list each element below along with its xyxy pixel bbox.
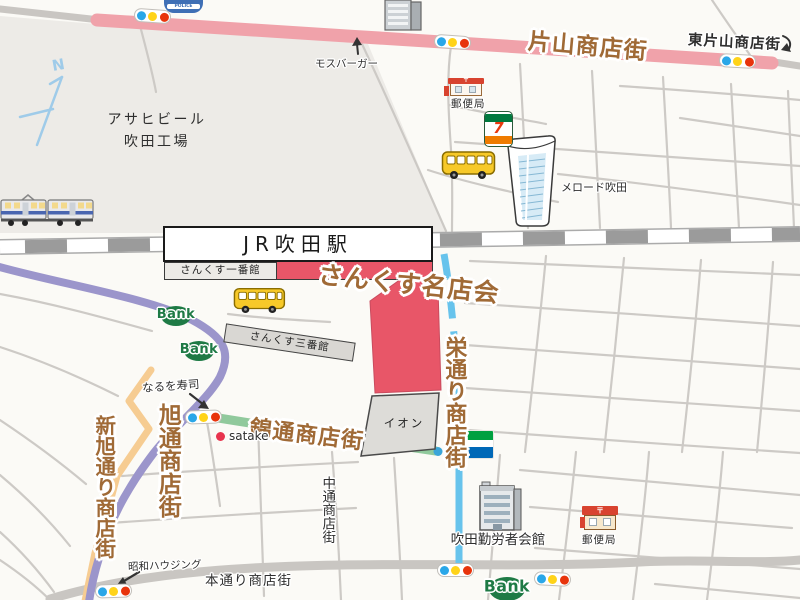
signal-red: [120, 586, 129, 595]
traffic-light-icon: [719, 53, 757, 69]
signal-yellow: [548, 574, 557, 583]
bank-icon: Bank: [476, 569, 538, 600]
traffic-light-icon: [95, 583, 132, 598]
postal-mark: 〒: [448, 78, 484, 84]
street-label-shin-asahi-dori: 新旭通り商店街: [92, 415, 114, 559]
place-label-post-office-bottom: 郵便局: [582, 532, 617, 547]
place-label-asahi-beer-1: アサヒビール: [104, 109, 210, 129]
signal-red: [744, 57, 753, 66]
signal-blue: [97, 587, 106, 596]
seven-numeral: 7: [485, 119, 512, 137]
familymart-icon: FamilyMart: [465, 430, 494, 459]
signal-blue: [436, 36, 446, 46]
place-label-asahi-beer-2: 吹田工場: [121, 131, 193, 151]
traffic-light-icon: [437, 563, 474, 577]
map-canvas: JR吹田駅 さんくす一番館 さんくす三番館 POLICE 〒 7 FamilyM…: [0, 0, 800, 600]
signal-red: [559, 575, 568, 584]
police-band: POLICE: [167, 4, 200, 9]
signal-blue: [136, 10, 146, 20]
traffic-light-icon: [434, 34, 472, 51]
sanks-no1-box: さんくす一番館: [164, 262, 277, 280]
familymart-wordmark-band: FamilyMart: [466, 440, 493, 447]
signal-yellow: [109, 586, 118, 595]
signal-red: [159, 12, 169, 22]
post-office-icon: 〒: [444, 78, 484, 98]
workers-hall-icon: [480, 482, 521, 530]
traffic-light-icon: [185, 409, 222, 424]
jr-suita-station-label: JR吹田駅: [165, 228, 431, 261]
seven-eleven-icon: 7: [484, 111, 513, 147]
signal-yellow: [448, 37, 458, 47]
jr-suita-station-box: JR吹田駅: [163, 226, 433, 262]
melodo-tower-icon: [508, 136, 555, 226]
police-box-icon: POLICE: [164, 0, 203, 13]
bank-label: Bank: [476, 578, 538, 596]
bank-icon: Bank: [173, 334, 225, 368]
signal-blue: [440, 566, 449, 575]
postal-mark: 〒: [582, 506, 618, 515]
traffic-light-icon: [534, 571, 572, 587]
bank-label: Bank: [173, 342, 225, 357]
post-office-roof: 〒: [582, 506, 618, 515]
seven-orange-stripe: [485, 136, 512, 144]
bus-icon: [234, 289, 284, 313]
post-office-icon: 〒: [580, 504, 620, 532]
signal-yellow: [451, 566, 460, 575]
street-label-hon-dori: 本通り商店街: [205, 569, 292, 589]
sanks-no1-label: さんくす一番館: [165, 263, 276, 278]
signal-blue: [721, 56, 730, 65]
familymart-green-stripe: [466, 431, 493, 440]
building-icon: [385, 0, 421, 30]
signal-red: [210, 412, 219, 421]
post-office-window: [469, 86, 476, 93]
signal-yellow: [148, 11, 158, 21]
place-label-showa-housing: 昭和ハウジング: [128, 557, 202, 575]
place-label-post-office-top: 郵便局: [451, 96, 486, 111]
bank-label: Bank: [150, 307, 202, 322]
place-label-satake: satake: [229, 429, 269, 443]
signal-yellow: [733, 56, 742, 65]
familymart-blue-stripe: [466, 447, 493, 458]
mos-burger-arrow: [357, 44, 358, 54]
post-office-roof: 〒: [448, 78, 484, 84]
place-label-workers-hall: 吹田勤労者会館: [442, 528, 554, 548]
traffic-light-icon: [134, 8, 172, 25]
place-label-aeon: イオン: [379, 415, 429, 431]
signal-blue: [187, 413, 196, 422]
satake-marker-dot: [216, 432, 225, 441]
street-label-sakae-dori: 栄通り商店街: [442, 336, 465, 468]
post-office-window: [589, 518, 597, 526]
street-label-asahi-dori: 旭通商店街: [155, 403, 179, 518]
post-office-window: [603, 518, 611, 526]
police-label: POLICE: [167, 4, 200, 9]
post-office-window: [455, 86, 462, 93]
signal-red: [463, 566, 472, 575]
place-label-mos-burger: モスバーガー: [315, 56, 378, 71]
street-label-naka-dori: 中通商店街: [320, 476, 334, 544]
signal-red: [459, 38, 469, 48]
postbox-icon: [580, 517, 585, 528]
signal-blue: [536, 574, 545, 583]
signal-yellow: [199, 412, 208, 421]
place-label-melodo-suita: メロード吹田: [561, 179, 627, 195]
postbox-icon: [444, 86, 449, 96]
bus-icon: [443, 152, 495, 179]
bank-icon: Bank: [150, 299, 202, 333]
map-vector-layer: [0, 0, 800, 600]
